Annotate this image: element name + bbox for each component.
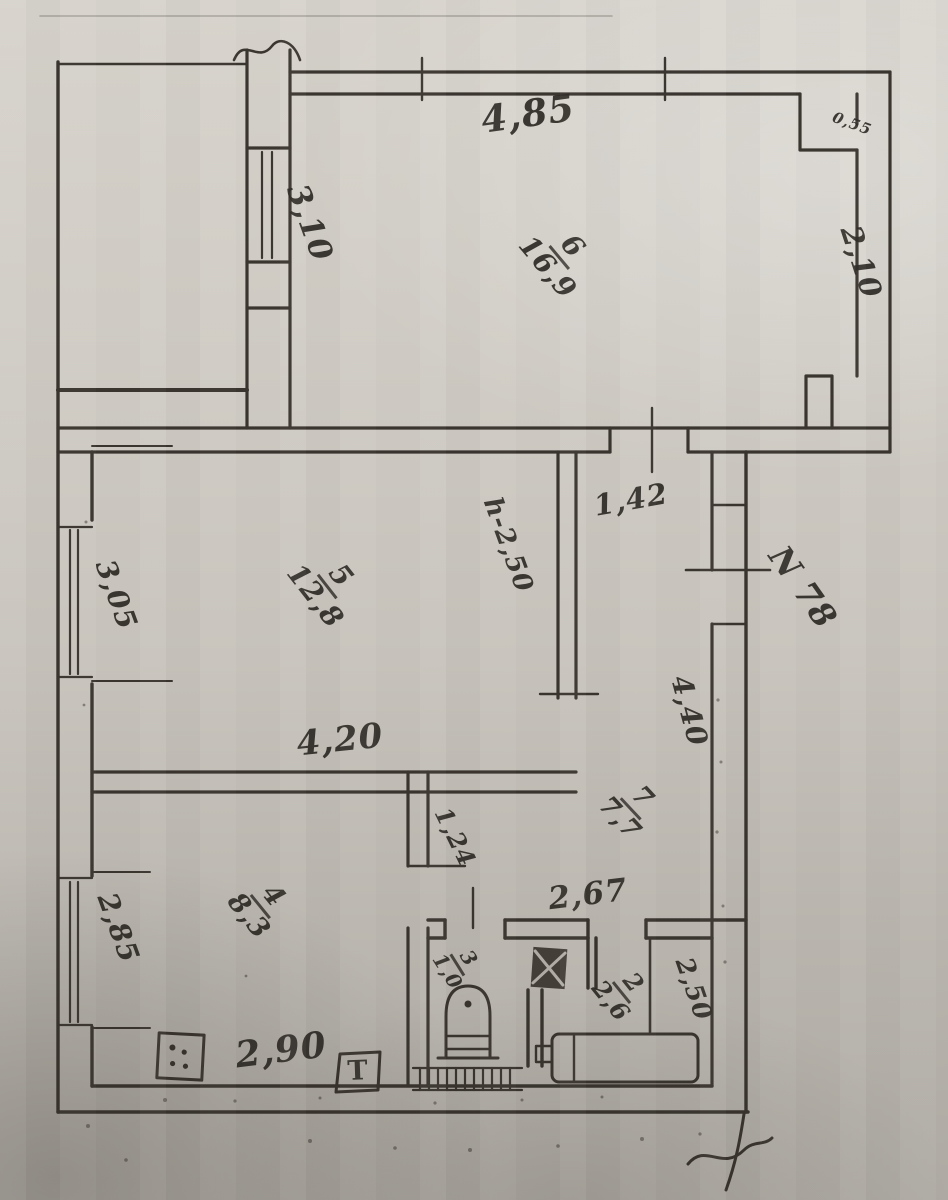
dim-kitchen-left: 2,85 [92, 889, 143, 966]
dim-door-offset: 1,24 [431, 804, 480, 871]
room4-label: 4 8,3 [223, 869, 299, 944]
dim-top-width: 4,85 [479, 89, 577, 139]
handwritten-labels: 4,85 0,55 3,10 6 16,9 2,10 1,42 h-2,50 5… [0, 0, 948, 1200]
dim-kitchen-width: 2,90 [233, 1027, 328, 1074]
dim-room5-width: 4,20 [295, 719, 385, 762]
room2-label: 2 2,6 [588, 958, 656, 1025]
dim-right-notch: 0,55 [830, 110, 873, 138]
room3-label: 3 1,0 [429, 937, 486, 992]
dim-room6-right: 2,10 [836, 222, 887, 302]
heat-marker-letter: Т [347, 1057, 369, 1085]
room6-label: 6 16,9 [514, 210, 606, 303]
scanned-floor-plan-page: 4,85 0,55 3,10 6 16,9 2,10 1,42 h-2,50 5… [0, 0, 948, 1200]
dim-room6-left: 3,10 [281, 180, 337, 265]
ceiling-height-note: h-2,50 [479, 494, 537, 596]
room7-label: 7 7,7 [594, 771, 667, 844]
apartment-number: N 78 [763, 540, 843, 634]
dim-entry-corridor: 4,40 [666, 673, 712, 750]
dim-room5-left: 3,05 [90, 556, 141, 633]
dim-bath-block-width: 2,67 [547, 875, 630, 915]
dim-hall-width: 1,42 [592, 479, 671, 521]
room5-label: 5 12,8 [282, 539, 373, 632]
dim-bath-depth: 2,50 [672, 954, 717, 1023]
